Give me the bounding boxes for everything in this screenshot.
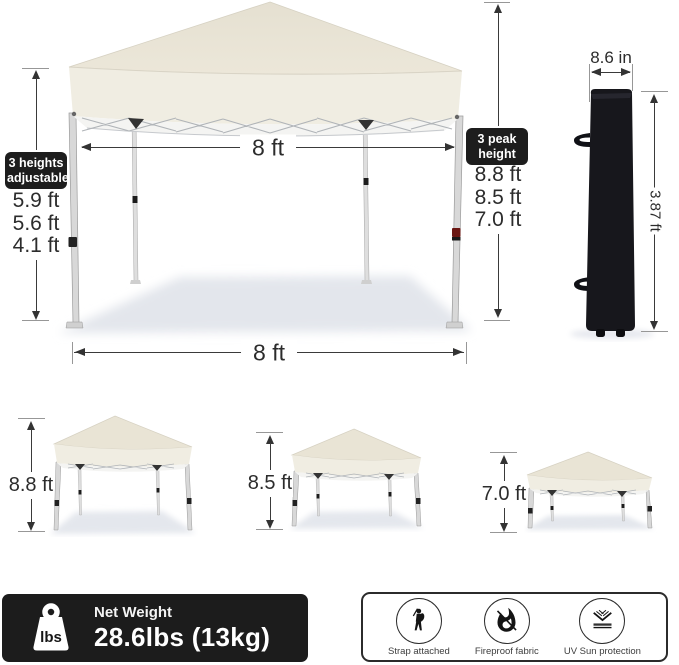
dimension-line xyxy=(36,260,37,312)
top-width-value: 8 ft xyxy=(240,134,296,161)
canopy-product-infographic: 3 heights adjustable 5.9 ft 5.6 ft 4.1 f… xyxy=(0,0,679,665)
arrow-down-icon xyxy=(650,321,658,330)
arrow-down-icon xyxy=(500,523,508,532)
dimension-tick xyxy=(18,418,45,419)
dimension-tick xyxy=(22,68,49,69)
weight-icon-text: lbs xyxy=(40,629,62,646)
arrow-left-icon xyxy=(591,68,601,76)
feature-circle xyxy=(396,598,442,644)
height-value: 5.9 ft xyxy=(0,190,72,213)
dimension-tick xyxy=(484,320,510,321)
dimension-line xyxy=(498,12,499,126)
uv-protection-icon xyxy=(589,607,616,634)
peak-height-value: 7.0 ft xyxy=(462,209,534,232)
dimension-tick xyxy=(18,531,45,532)
label-line1: 3 heights xyxy=(9,156,64,170)
no-fire-icon xyxy=(493,607,520,634)
net-weight-value: 28.6lbs (13kg) xyxy=(94,622,270,653)
dimension-line xyxy=(498,234,499,310)
arrow-down-icon xyxy=(266,520,274,529)
ground-shadow xyxy=(58,276,472,333)
arrow-right-icon xyxy=(621,68,631,76)
dimension-tick xyxy=(22,320,49,321)
feature-fireproof-fabric: Fireproof fabric xyxy=(475,598,539,657)
dimension-line xyxy=(36,78,37,150)
bag-height-value: 3.87 ft xyxy=(644,188,666,235)
arrow-left-icon xyxy=(75,348,85,356)
label-line2: adjustable xyxy=(7,171,69,185)
peak-height-value: 8.8 ft xyxy=(462,164,534,187)
height-value: 4.1 ft xyxy=(0,235,72,258)
three-heights-adjustable-label: 3 heights adjustable xyxy=(5,152,67,189)
net-weight-title: Net Weight xyxy=(94,604,270,621)
feature-label: UV Sun protection xyxy=(564,646,641,657)
canopy-roof xyxy=(69,2,462,74)
canopy-valance xyxy=(69,67,462,124)
label-line1: 3 peak xyxy=(478,132,517,146)
arrow-right-icon xyxy=(445,143,455,151)
bottom-width-value: 8 ft xyxy=(241,339,297,366)
three-peak-height-label: 3 peak height xyxy=(466,128,528,165)
dimension-tick xyxy=(484,2,510,3)
feature-uv-protection: UV Sun protection xyxy=(564,598,641,657)
arrow-down-icon xyxy=(32,311,40,320)
weight-icon: lbs xyxy=(28,602,74,654)
peak-height-value: 8.5 ft xyxy=(462,187,534,210)
arrow-down-icon xyxy=(494,309,502,318)
features-box: Strap attached Fireproof fabric xyxy=(361,592,668,662)
dimension-tick xyxy=(641,91,668,92)
arrow-down-icon xyxy=(27,522,35,531)
dimension-tick xyxy=(490,452,517,453)
bag-body xyxy=(586,89,635,331)
variant-height-value: 7.0 ft xyxy=(481,481,527,508)
tent-variant-tall-illustration xyxy=(48,412,198,537)
feature-circle xyxy=(579,598,625,644)
top-width-dimension: 8 ft xyxy=(80,137,456,158)
bag-top-face xyxy=(591,93,632,99)
label-line2: height xyxy=(478,147,516,161)
feature-label: Fireproof fabric xyxy=(475,646,539,657)
arrow-right-icon xyxy=(453,348,463,356)
feature-label: Strap attached xyxy=(388,646,450,657)
variant-height-value: 8.5 ft xyxy=(247,470,293,497)
net-weight-banner: lbs Net Weight 28.6lbs (13kg) xyxy=(2,594,308,662)
main-tent-illustration xyxy=(52,0,477,345)
adjustable-heights-values: 5.9 ft 5.6 ft 4.1 ft xyxy=(0,190,72,258)
dimension-tick xyxy=(256,432,283,433)
dimension-tick xyxy=(256,529,283,530)
variant-height-value: 8.8 ft xyxy=(8,472,54,499)
dimension-tick xyxy=(632,64,633,91)
tent-variant-medium-illustration xyxy=(288,426,426,532)
dimension-tick xyxy=(490,532,517,533)
leg-adjuster-right xyxy=(452,228,461,237)
dimension-tick xyxy=(641,331,668,332)
arrow-left-icon xyxy=(81,143,91,151)
net-weight-text: Net Weight 28.6lbs (13kg) xyxy=(94,604,270,653)
height-value: 5.6 ft xyxy=(0,213,72,236)
person-carrying-bag-icon xyxy=(405,607,432,634)
tent-variant-short-illustration xyxy=(524,448,657,533)
peak-heights-values: 8.8 ft 8.5 ft 7.0 ft xyxy=(462,164,534,232)
feature-circle xyxy=(484,598,530,644)
feature-strap-attached: Strap attached xyxy=(388,598,450,657)
